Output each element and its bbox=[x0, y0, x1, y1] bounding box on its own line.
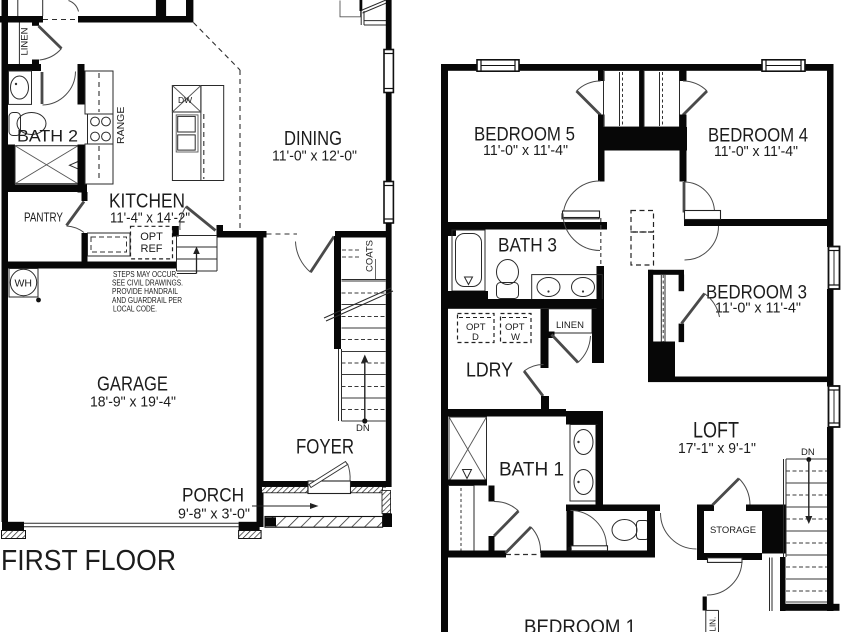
svg-text:FIRST FLOOR: FIRST FLOOR bbox=[1, 545, 176, 577]
svg-text:PORCH: PORCH bbox=[182, 485, 244, 507]
svg-text:LINEN: LINEN bbox=[556, 320, 584, 331]
svg-text:REF: REF bbox=[141, 243, 163, 255]
svg-text:BATH 3: BATH 3 bbox=[498, 235, 557, 257]
svg-text:11'-4" x 14'-2": 11'-4" x 14'-2" bbox=[110, 210, 190, 227]
svg-text:9'-8" x 3'-0": 9'-8" x 3'-0" bbox=[178, 506, 250, 523]
svg-text:W: W bbox=[511, 332, 520, 343]
svg-text:LINEN: LINEN bbox=[20, 27, 31, 55]
svg-text:11'-0" x 11'-4": 11'-0" x 11'-4" bbox=[715, 300, 801, 317]
svg-text:D: D bbox=[472, 332, 479, 343]
svg-text:LDRY: LDRY bbox=[466, 360, 513, 382]
svg-text:11'-0" x 12'-0": 11'-0" x 12'-0" bbox=[272, 148, 357, 165]
svg-text:LIN.: LIN. bbox=[709, 617, 718, 632]
svg-text:LOFT: LOFT bbox=[693, 418, 739, 443]
svg-text:BEDROOM 1: BEDROOM 1 bbox=[524, 617, 636, 632]
svg-text:WH: WH bbox=[15, 278, 33, 290]
svg-text:DN: DN bbox=[356, 423, 370, 434]
svg-text:OPT: OPT bbox=[140, 231, 163, 243]
svg-text:11'-0" x 11'-4": 11'-0" x 11'-4" bbox=[714, 143, 798, 160]
svg-text:RANGE: RANGE bbox=[115, 107, 127, 144]
svg-text:FOYER: FOYER bbox=[296, 436, 354, 459]
svg-text:GARAGE: GARAGE bbox=[97, 373, 168, 396]
svg-text:PANTRY: PANTRY bbox=[24, 211, 64, 225]
svg-text:17'-1" x 9'-1": 17'-1" x 9'-1" bbox=[678, 440, 756, 457]
svg-text:STORAGE: STORAGE bbox=[710, 525, 756, 536]
svg-text:LOCAL CODE.: LOCAL CODE. bbox=[113, 304, 157, 313]
svg-text:COATS: COATS bbox=[365, 240, 376, 272]
svg-text:BATH 1: BATH 1 bbox=[499, 459, 564, 481]
svg-text:18'-9" x 19'-4": 18'-9" x 19'-4" bbox=[90, 394, 176, 411]
svg-text:DN: DN bbox=[801, 447, 815, 458]
svg-text:11'-0" x 11'-4": 11'-0" x 11'-4" bbox=[483, 142, 568, 159]
svg-text:BATH 2: BATH 2 bbox=[17, 127, 78, 146]
svg-text:DW: DW bbox=[178, 95, 192, 105]
